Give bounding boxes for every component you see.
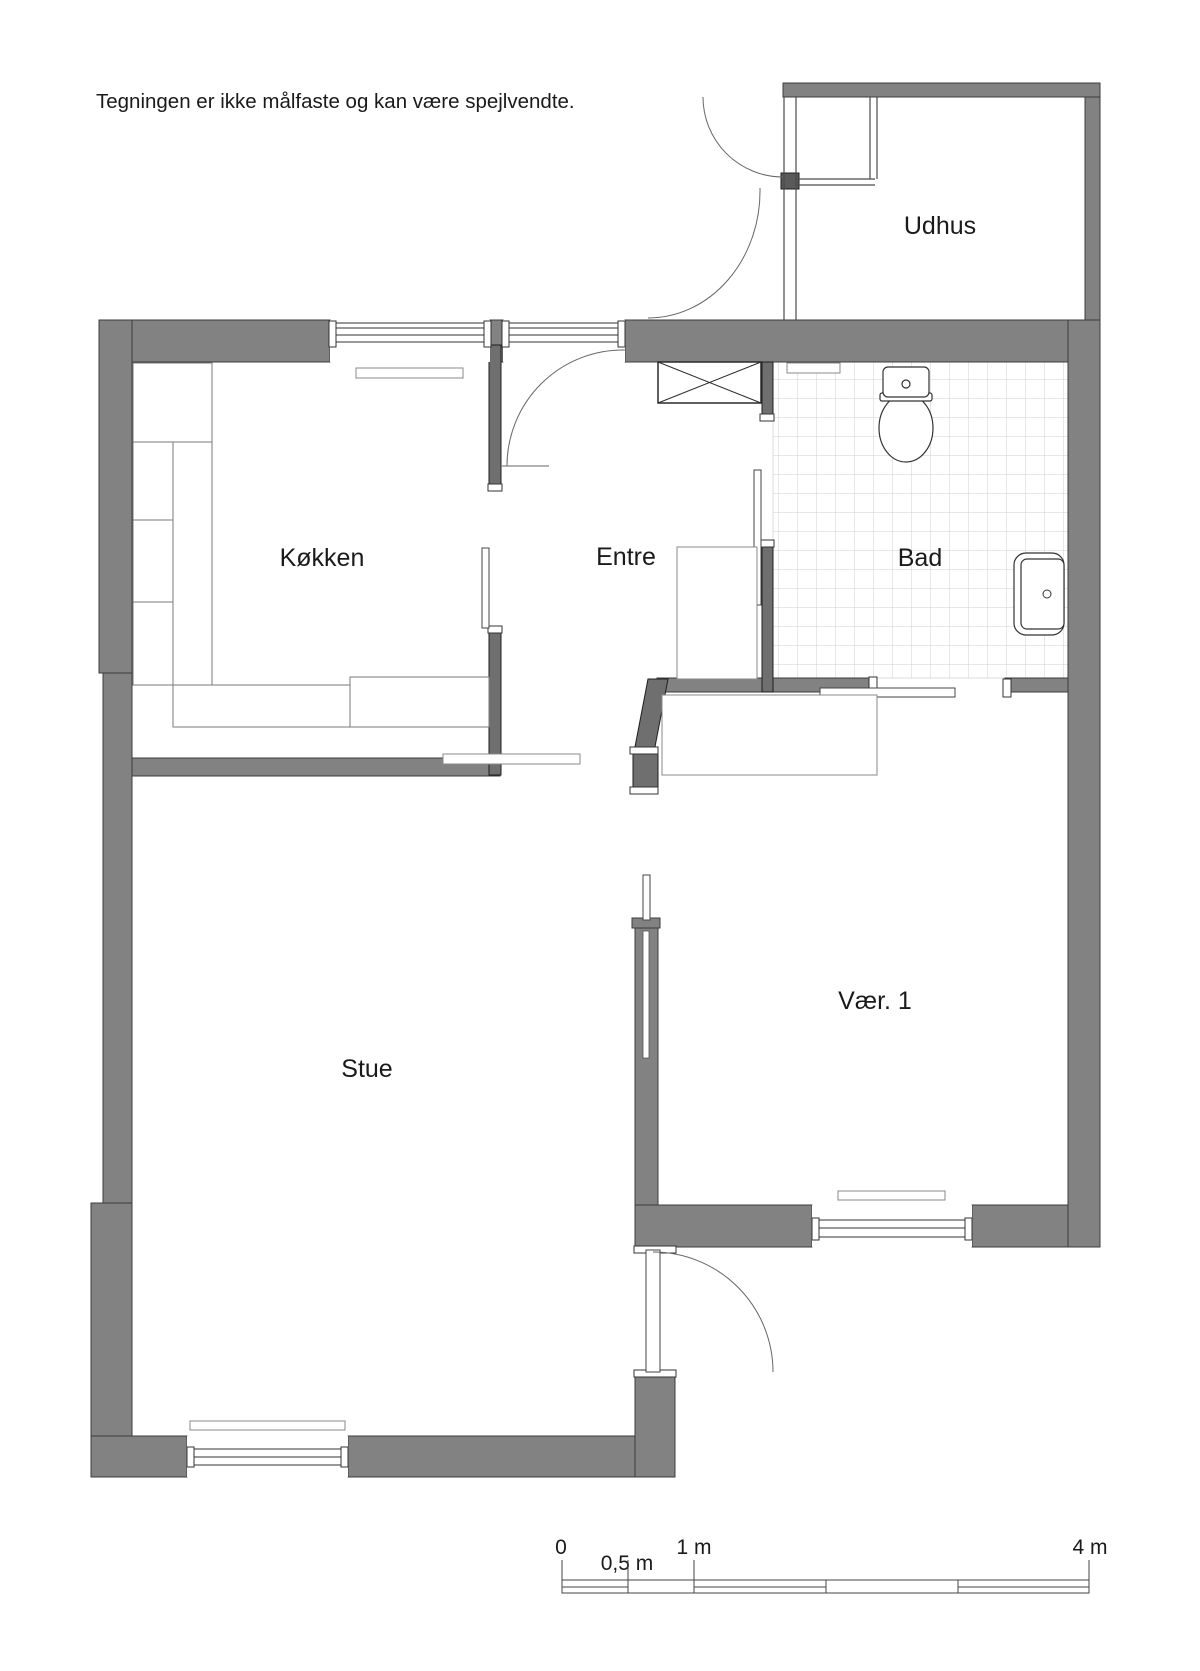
- disclaimer-text: Tegningen er ikke målfaste og kan være s…: [96, 90, 575, 113]
- toilet-icon: [879, 367, 933, 462]
- wall-stue-right-block: [635, 1375, 675, 1477]
- room-label-entre: Entre: [596, 543, 656, 571]
- room-label-kokken: Køkken: [280, 544, 365, 572]
- pocket-door-slot: [643, 931, 649, 1058]
- kitchen-cabinet-strip: [133, 442, 173, 685]
- kitchen-stue-opening-bar: [443, 754, 580, 764]
- kitchen-entre-door-leaf: [482, 548, 489, 628]
- room-label-bad: Bad: [898, 544, 942, 572]
- wall-top-left: [99, 320, 330, 362]
- background: [0, 0, 1200, 1671]
- kitchen-window: [329, 320, 491, 362]
- kitchen-table: [350, 677, 489, 727]
- bad-shelf: [787, 363, 840, 373]
- scale-label-4m: 4 m: [1072, 1536, 1107, 1559]
- scale-label-05m: 0,5 m: [601, 1552, 654, 1575]
- stue-window: [187, 1421, 348, 1477]
- wall-entre-stue-block: [633, 752, 658, 792]
- kitchen-counter-block: [133, 363, 212, 442]
- wall-bad-left-upper: [762, 362, 773, 418]
- wall-kitchen-entre-lower: [489, 628, 501, 775]
- wall-left-middle: [103, 673, 132, 1203]
- scale-label-0: 0: [555, 1536, 567, 1559]
- wall-udhus-right: [1085, 97, 1100, 320]
- wall-bottom-left: [91, 1436, 187, 1477]
- entre-crossed-box: [658, 362, 761, 403]
- entrance-door-opening: [502, 320, 625, 362]
- wall-top-right: [625, 320, 1068, 362]
- floorplan-drawing: Tegningen er ikke målfaste og kan være s…: [0, 0, 1200, 1671]
- entre-closet: [677, 547, 757, 679]
- vaer1-wardrobe: [662, 695, 877, 775]
- wall-vaer1-bottom-right: [972, 1205, 1068, 1247]
- stue-radiator: [190, 1421, 345, 1430]
- kitchen-counter-bottom: [173, 685, 350, 727]
- room-label-vaer1: Vær. 1: [838, 987, 912, 1015]
- pocket-door-leaf: [643, 875, 650, 920]
- wall-bad-left-lower: [762, 545, 773, 692]
- floorplan-page: Tegningen er ikke målfaste og kan være s…: [0, 0, 1200, 1671]
- stue-exterior-door-leaf: [646, 1250, 660, 1372]
- sink-icon: [1014, 553, 1064, 635]
- wall-bottom-right: [348, 1436, 675, 1477]
- wall-kitchen-entre-upper: [489, 345, 501, 490]
- vaer1-radiator: [838, 1191, 945, 1200]
- wall-udhus-top: [783, 83, 1100, 97]
- wall-right: [1068, 320, 1100, 1247]
- room-label-stue: Stue: [341, 1055, 392, 1083]
- wall-left-upper: [99, 320, 132, 673]
- kitchen-radiator: [356, 368, 463, 378]
- scale-label-1m: 1 m: [676, 1536, 711, 1559]
- wall-bad-bottom-right: [1005, 678, 1068, 692]
- wall-vaer1-bottom-left: [635, 1205, 812, 1247]
- room-label-udhus: Udhus: [904, 212, 976, 240]
